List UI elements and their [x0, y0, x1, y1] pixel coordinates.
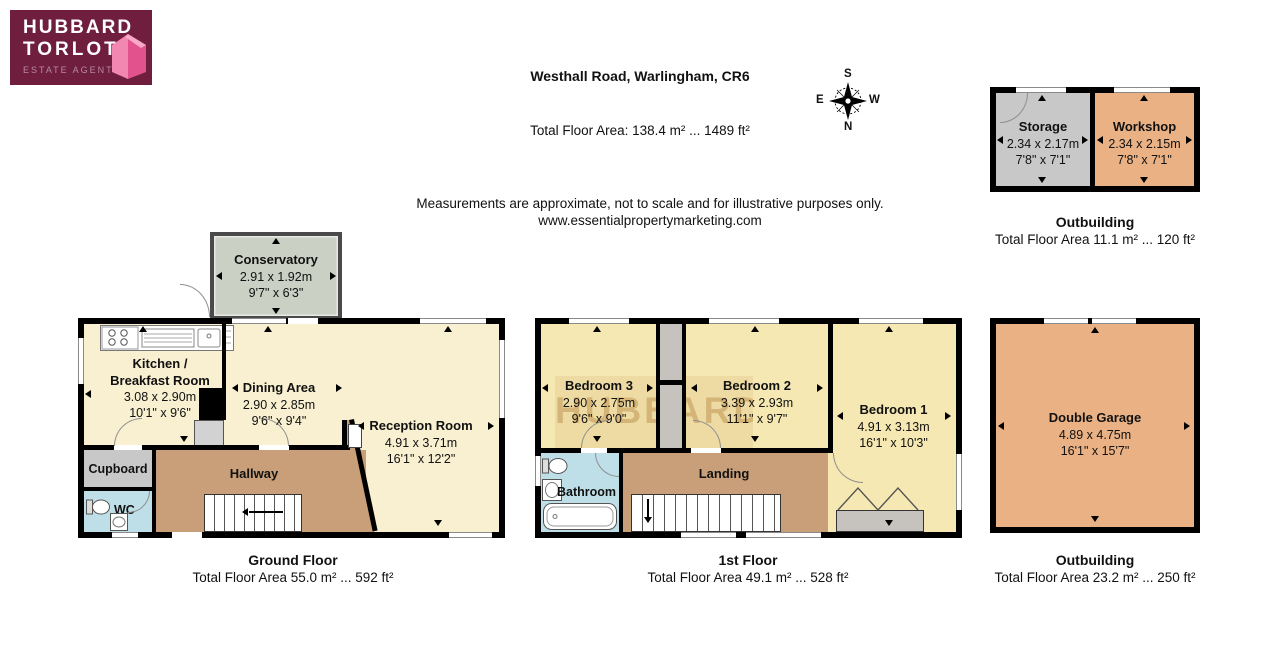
window: [420, 318, 486, 324]
wall: [152, 450, 156, 532]
door-gap: [288, 318, 318, 324]
measure-arrow: [1091, 516, 1099, 522]
measure-arrow: [336, 384, 342, 392]
room-imperial: 16'1" x 12'2": [342, 451, 500, 467]
measure-arrow: [1091, 327, 1099, 333]
disclaimer-text: Measurements are approximate, not to sca…: [230, 196, 1070, 211]
measure-arrow: [358, 422, 364, 430]
measure-arrow: [1186, 136, 1192, 144]
room-conservatory: Conservatory 2.91 x 1.92m 9'7" x 6'3": [210, 232, 342, 320]
door-arc: [114, 418, 142, 446]
room-name: Bathroom: [557, 485, 616, 499]
stair-arrow: [242, 508, 248, 516]
window: [709, 318, 779, 324]
garage-label: Double Garage 4.89 x 4.75m 16'1" x 15'7": [996, 410, 1194, 459]
measure-arrow: [1140, 95, 1148, 101]
door-arc: [833, 453, 863, 483]
floorplan-page: HUBBARD TORLOT ESTATE AGENTS Westhall Ro…: [0, 0, 1280, 649]
measure-arrow: [998, 422, 1004, 430]
bedroom2-label: Bedroom 2 3.39 x 2.93m 11'1" x 9'7": [687, 378, 827, 427]
window: [569, 318, 629, 324]
logo-tagline: ESTATE AGENTS: [23, 65, 122, 75]
window: [1044, 318, 1088, 324]
room-metric: 4.91 x 3.71m: [342, 435, 500, 451]
stairs-ground: [204, 494, 302, 532]
measure-arrow: [945, 412, 951, 420]
caption-area: Total Floor Area 49.1 m² ... 528 ft²: [588, 570, 908, 585]
measure-arrow: [216, 272, 222, 280]
measure-arrow: [751, 436, 759, 442]
room-name: Bedroom 2: [687, 378, 827, 395]
measure-arrow: [85, 390, 91, 398]
bedroom1-label: Bedroom 1 4.91 x 3.13m 16'1" x 10'3": [831, 402, 956, 451]
compass-top: S: [844, 68, 852, 80]
measure-arrow: [647, 384, 653, 392]
room-metric: 2.34 x 2.15m: [1095, 136, 1194, 152]
window: [859, 318, 923, 324]
caption-area: Total Floor Area 55.0 m² ... 592 ft²: [133, 570, 453, 585]
ground-floor-caption: Ground Floor Total Floor Area 55.0 m² ..…: [133, 552, 453, 585]
garage-caption: Outbuilding Total Floor Area 23.2 m² ...…: [935, 552, 1255, 585]
toilet-icon: [542, 456, 570, 476]
landing-label: Landing: [649, 466, 799, 483]
measure-arrow: [1140, 177, 1148, 183]
room-metric: 2.34 x 2.17m: [996, 136, 1090, 152]
measure-arrow: [1097, 136, 1103, 144]
website-text: www.essentialpropertymarketing.com: [230, 213, 1070, 228]
room-imperial: 11'1" x 9'7": [687, 411, 827, 427]
room-name: Cupboard: [88, 462, 147, 476]
dining-label: Dining Area 2.90 x 2.85m 9'6" x 9'4": [204, 380, 354, 429]
caption-title: 1st Floor: [588, 552, 908, 568]
stair-arrow-line: [249, 511, 283, 513]
caption-title: Outbuilding: [965, 214, 1225, 230]
measure-arrow: [885, 326, 893, 332]
measure-arrow: [593, 436, 601, 442]
measure-arrow: [434, 520, 442, 526]
house-icon: [108, 32, 148, 80]
measure-arrow: [264, 326, 272, 332]
front-door-gap: [172, 532, 202, 538]
caption-area: Total Floor Area 11.1 m² ... 120 ft²: [965, 232, 1225, 247]
bedroom3-label: Bedroom 3 2.90 x 2.75m 9'6" x 9'0": [539, 378, 659, 427]
toilet-icon: [86, 497, 112, 517]
conservatory-label: Conservatory 2.91 x 1.92m 9'7" x 6'3": [214, 252, 338, 301]
measure-arrow: [330, 272, 336, 280]
caption-title: Ground Floor: [133, 552, 453, 568]
measure-arrow: [751, 326, 759, 332]
measure-arrow: [817, 384, 823, 392]
measure-arrow: [1082, 136, 1088, 144]
measure-arrow: [212, 390, 218, 398]
compass-rose-icon: [828, 81, 868, 121]
room-metric: 4.89 x 4.75m: [996, 427, 1194, 443]
room-imperial: 7'8" x 7'1": [996, 152, 1090, 168]
storage-label: Storage 2.34 x 2.17m 7'8" x 7'1": [996, 119, 1090, 168]
stair-arrow-line: [647, 499, 649, 517]
window: [1092, 318, 1136, 324]
address-title: Westhall Road, Warlingham, CR6: [530, 68, 749, 84]
room-imperial: 7'8" x 7'1": [1095, 152, 1194, 168]
window: [449, 532, 492, 538]
measure-arrow: [542, 384, 548, 392]
room-metric: 2.91 x 1.92m: [214, 269, 338, 285]
room-imperial: 16'1" x 15'7": [996, 443, 1194, 459]
room-cupboard: Cupboard: [84, 450, 152, 487]
measure-arrow: [593, 326, 601, 332]
room-name: Double Garage: [996, 410, 1194, 427]
room-name: Bedroom 1: [831, 402, 956, 419]
room-metric: 3.39 x 2.93m: [687, 395, 827, 411]
room-imperial: 9'6" x 9'4": [204, 413, 354, 429]
compass-bottom: N: [844, 121, 852, 133]
door-arc: [180, 284, 210, 317]
wardrobe-hanging-icon: [836, 482, 926, 512]
compass: S N E W: [816, 68, 880, 136]
room-metric: 2.90 x 2.85m: [204, 397, 354, 413]
measure-arrow: [272, 238, 280, 244]
room-metric: 4.91 x 3.13m: [831, 419, 956, 435]
logo-line2: TORLOT: [23, 39, 119, 61]
basin-icon: [110, 513, 128, 531]
measure-arrow: [997, 136, 1003, 144]
window: [499, 340, 505, 418]
ground-floor-plan: Cupboard WC Kitchen: [78, 318, 505, 538]
measure-arrow: [232, 384, 238, 392]
room-name: Kitchen /: [80, 356, 240, 373]
measure-arrow: [837, 412, 843, 420]
disclaimer-block: Measurements are approximate, not to sca…: [230, 196, 1070, 228]
room-name: Conservatory: [214, 252, 338, 269]
wardrobe: [836, 510, 924, 532]
room-imperial: 9'7" x 6'3": [214, 285, 338, 301]
window: [232, 318, 286, 324]
window: [681, 532, 736, 538]
window: [746, 532, 821, 538]
measure-arrow: [1038, 95, 1046, 101]
measure-arrow: [1038, 177, 1046, 183]
caption-area: Total Floor Area 23.2 m² ... 250 ft²: [935, 570, 1255, 585]
measure-arrow: [139, 326, 147, 332]
room-metric: 2.90 x 2.75m: [539, 395, 659, 411]
reception-label: Reception Room 4.91 x 3.71m 16'1" x 12'2…: [342, 418, 500, 467]
room-name: Workshop: [1095, 119, 1194, 136]
window: [956, 454, 962, 510]
first-floor-caption: 1st Floor Total Floor Area 49.1 m² ... 5…: [588, 552, 908, 585]
stairs-first: [631, 494, 781, 532]
room-name: Landing: [649, 466, 799, 483]
measure-arrow: [444, 326, 452, 332]
room-imperial: 16'1" x 10'3": [831, 435, 956, 451]
room-name: Reception Room: [342, 418, 500, 435]
room-name: Bedroom 3: [539, 378, 659, 395]
hallway-label: Hallway: [184, 466, 324, 483]
kitchen-counter: [100, 325, 234, 351]
room-imperial: 9'6" x 9'0": [539, 411, 659, 427]
caption-title: Outbuilding: [935, 552, 1255, 568]
window: [112, 532, 138, 538]
outbuilding-top-caption: Outbuilding Total Floor Area 11.1 m² ...…: [965, 214, 1225, 247]
measure-arrow: [1184, 422, 1190, 430]
outbuilding-top-plan: Storage 2.34 x 2.17m 7'8" x 7'1" Worksho…: [990, 87, 1200, 192]
agency-logo: HUBBARD TORLOT ESTATE AGENTS: [10, 10, 152, 85]
window: [1114, 87, 1170, 93]
room-name: Hallway: [184, 466, 324, 483]
first-floor-plan: HUBBARD TORLOT Bathroom: [535, 318, 962, 538]
chimney-column: [656, 324, 686, 452]
room-name: Dining Area: [204, 380, 354, 397]
room-name: Storage: [996, 119, 1090, 136]
garage-plan: Double Garage 4.89 x 4.75m 16'1" x 15'7": [990, 318, 1200, 533]
wall: [656, 380, 686, 385]
bath-icon: [543, 503, 617, 530]
measure-arrow: [488, 422, 494, 430]
measure-arrow: [180, 436, 188, 442]
measure-arrow: [691, 384, 697, 392]
measure-arrow: [272, 308, 280, 314]
workshop-label: Workshop 2.34 x 2.15m 7'8" x 7'1": [1095, 119, 1194, 168]
stair-arrow: [644, 517, 652, 523]
window: [535, 456, 541, 486]
measure-arrow: [885, 520, 893, 526]
compass-left: E: [816, 94, 824, 106]
compass-right: W: [869, 94, 880, 106]
